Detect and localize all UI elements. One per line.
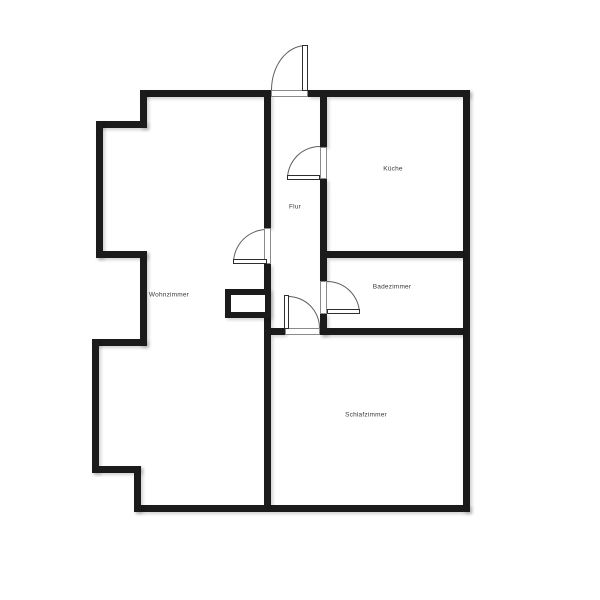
badezimmer-door-threshold: [320, 281, 327, 314]
wall-kueche-badezimmer-divider: [327, 251, 463, 258]
badezimmer-door-leaf: [327, 309, 360, 314]
floorplan: Wohnzimmer Flur Küche Badezimmer Schlafz…: [0, 0, 600, 600]
wall-notch1-top: [96, 121, 147, 128]
entrance-door-threshold: [271, 90, 308, 97]
room-label-badezimmer: Badezimmer: [373, 284, 411, 291]
wohnzimmer-door-leaf: [233, 259, 267, 264]
schlafzimmer-door-threshold: [285, 328, 320, 335]
wall-notch1-left: [96, 121, 103, 258]
wall-top-right-segment: [308, 90, 470, 97]
wall-top-left-segment: [140, 90, 271, 97]
kueche-door-leaf: [287, 175, 320, 180]
kueche-door-threshold: [320, 147, 327, 179]
room-label-flur: Flur: [289, 204, 301, 211]
wall-flur-left-upper: [264, 97, 271, 228]
chimney-block: [225, 289, 271, 318]
schlafzimmer-door-arc: [288, 296, 320, 328]
wohnzimmer-door-arc: [233, 229, 267, 263]
wall-left-bottom-vertical: [134, 466, 141, 512]
wall-left-mid-vertical: [140, 251, 147, 346]
schlafzimmer-door-leaf: [284, 295, 289, 329]
room-label-schlafzimmer: Schlafzimmer: [345, 412, 387, 419]
wall-schlafzimmer-top: [320, 328, 463, 335]
room-label-kueche: Küche: [383, 166, 402, 173]
entrance-door-arc: [271, 45, 306, 90]
wall-schlafzimmer-top-stub: [271, 328, 285, 335]
wall-flur-right-upper: [320, 97, 327, 147]
wall-bottom: [134, 505, 470, 512]
wall-notch2-top: [92, 339, 147, 346]
entrance-door-leaf: [302, 45, 308, 91]
wall-right: [463, 90, 470, 512]
wall-flur-right-middle: [320, 179, 327, 281]
wall-notch2-left: [92, 339, 99, 473]
room-label-wohnzimmer: Wohnzimmer: [149, 292, 189, 299]
